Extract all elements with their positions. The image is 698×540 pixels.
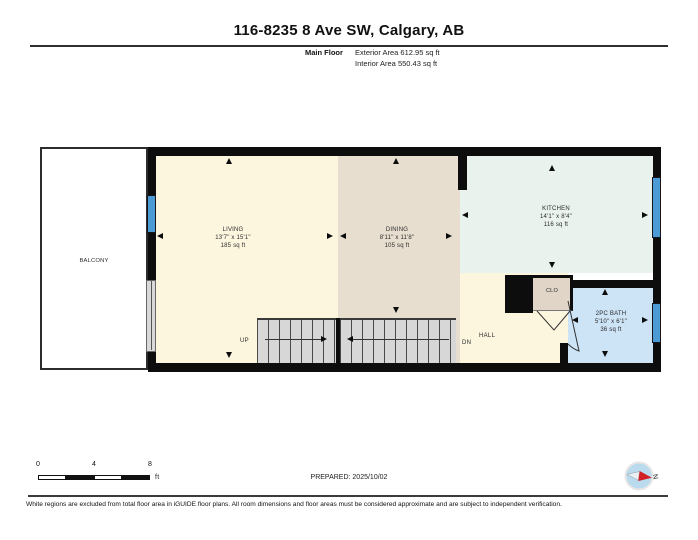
closet-label: CLO xyxy=(546,288,558,295)
compass-north-label: N xyxy=(651,474,659,480)
kitchen-label: KITCHEN 14'1" x 8'4" 116 sq ft xyxy=(540,206,572,230)
bath-area: 36 sq ft xyxy=(595,327,627,335)
hall-label: HALL xyxy=(479,333,495,339)
dim-arrow-living-down-icon xyxy=(226,352,232,358)
bath-dims: 5'10" x 6'1" xyxy=(595,319,627,327)
kitchen-name: KITCHEN xyxy=(540,206,572,214)
scale-tick-4: 4 xyxy=(92,461,96,468)
kitchen-dims: 14'1" x 8'4" xyxy=(540,214,572,222)
compass-icon: N xyxy=(622,459,666,495)
dim-arrow-kitchen-right-icon xyxy=(642,212,648,218)
dim-arrow-living-right-icon xyxy=(327,233,333,239)
dining-name: DINING xyxy=(380,227,415,235)
dim-arrow-kitchen-up-icon xyxy=(549,165,555,171)
living-area: 185 sq ft xyxy=(215,243,251,251)
dim-arrow-kitchen-down-icon xyxy=(549,262,555,268)
stairs-down-label: DN xyxy=(462,340,471,346)
dining-dims: 8'11" x 11'8" xyxy=(380,235,415,243)
bath-name: 2PC BATH xyxy=(595,311,627,319)
dim-arrow-dining-right-icon xyxy=(446,233,452,239)
living-name: LIVING xyxy=(215,227,251,235)
living-dims: 13'7" x 15'1" xyxy=(215,235,251,243)
footer-divider xyxy=(28,495,668,497)
kitchen-area: 116 sq ft xyxy=(540,222,572,230)
dim-arrow-bath-down-icon xyxy=(602,351,608,357)
stairs-up-label: UP xyxy=(240,338,249,344)
scale-tick-8: 8 xyxy=(148,461,152,468)
dining-area: 105 sq ft xyxy=(380,243,415,251)
dim-arrow-bath-right-icon xyxy=(642,317,648,323)
closet-door-icon xyxy=(537,311,570,330)
bath-door-icon xyxy=(568,301,579,351)
prepared-date: PREPARED: 2025/10/02 xyxy=(0,474,698,481)
dim-arrow-bath-up-icon xyxy=(602,289,608,295)
dim-arrow-dining-left-icon xyxy=(340,233,346,239)
dim-arrow-kitchen-left-icon xyxy=(462,212,468,218)
floor-plan-page: 116-8235 8 Ave SW, Calgary, AB Main Floo… xyxy=(0,0,698,540)
dining-label: DINING 8'11" x 11'8" 105 sq ft xyxy=(380,227,415,251)
door-swing-overlay xyxy=(0,0,698,540)
dim-arrow-living-left-icon xyxy=(157,233,163,239)
footer-disclaimer: White regions are excluded from total fl… xyxy=(26,501,562,508)
dim-arrow-living-up-icon xyxy=(226,158,232,164)
scale-tick-0: 0 xyxy=(36,461,40,468)
dim-arrow-dining-down-icon xyxy=(393,307,399,313)
living-label: LIVING 13'7" x 15'1" 185 sq ft xyxy=(215,227,251,251)
dim-arrow-dining-up-icon xyxy=(393,158,399,164)
balcony-label: BALCONY xyxy=(79,258,108,266)
bath-label: 2PC BATH 5'10" x 6'1" 36 sq ft xyxy=(595,311,627,335)
dim-arrow-bath-left-icon xyxy=(572,317,578,323)
